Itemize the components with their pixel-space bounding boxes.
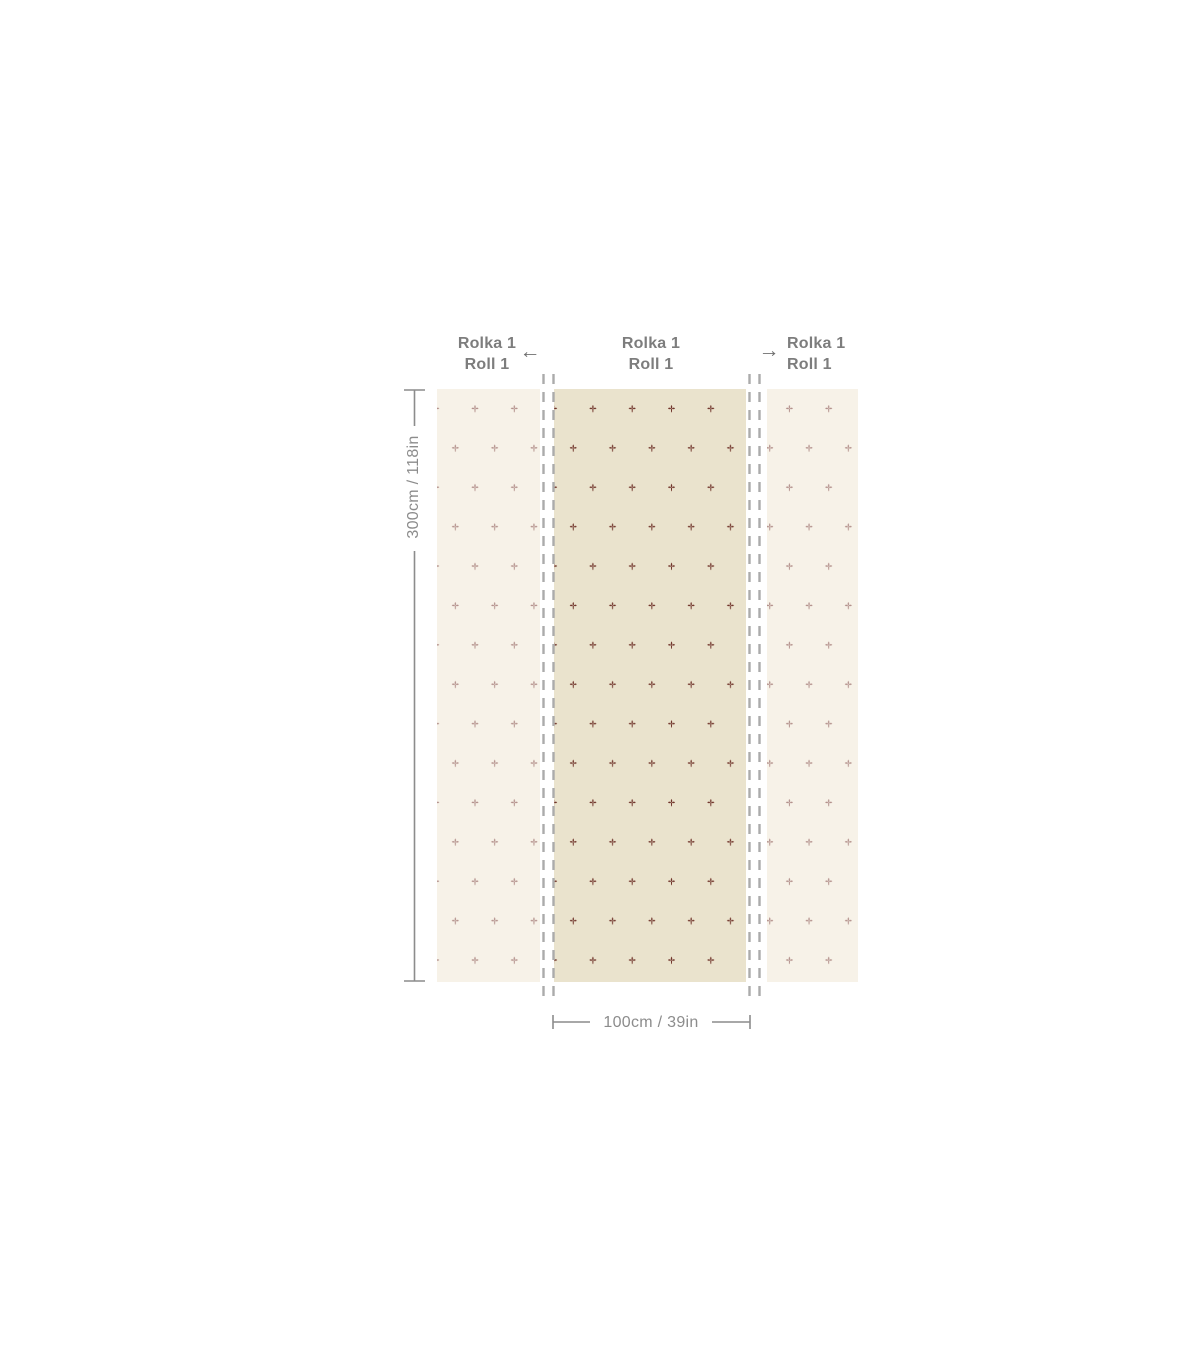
wallpaper-roll-diagram: Rolka 1 Roll 1 ← Rolka 1 Roll 1 → Rolka … (0, 0, 1200, 1372)
width-dimension-label: 100cm / 39in (576, 1013, 726, 1033)
right-roll-panel (767, 389, 858, 982)
center-panel-pattern (554, 389, 746, 982)
center-roll-panel (554, 389, 746, 982)
left-roll-panel (437, 389, 540, 982)
right-panel-pattern (767, 389, 858, 982)
height-dimension-label: 300cm / 118in (404, 407, 424, 567)
left-panel-pattern (437, 389, 540, 982)
diagram-canvas (0, 0, 1200, 1372)
